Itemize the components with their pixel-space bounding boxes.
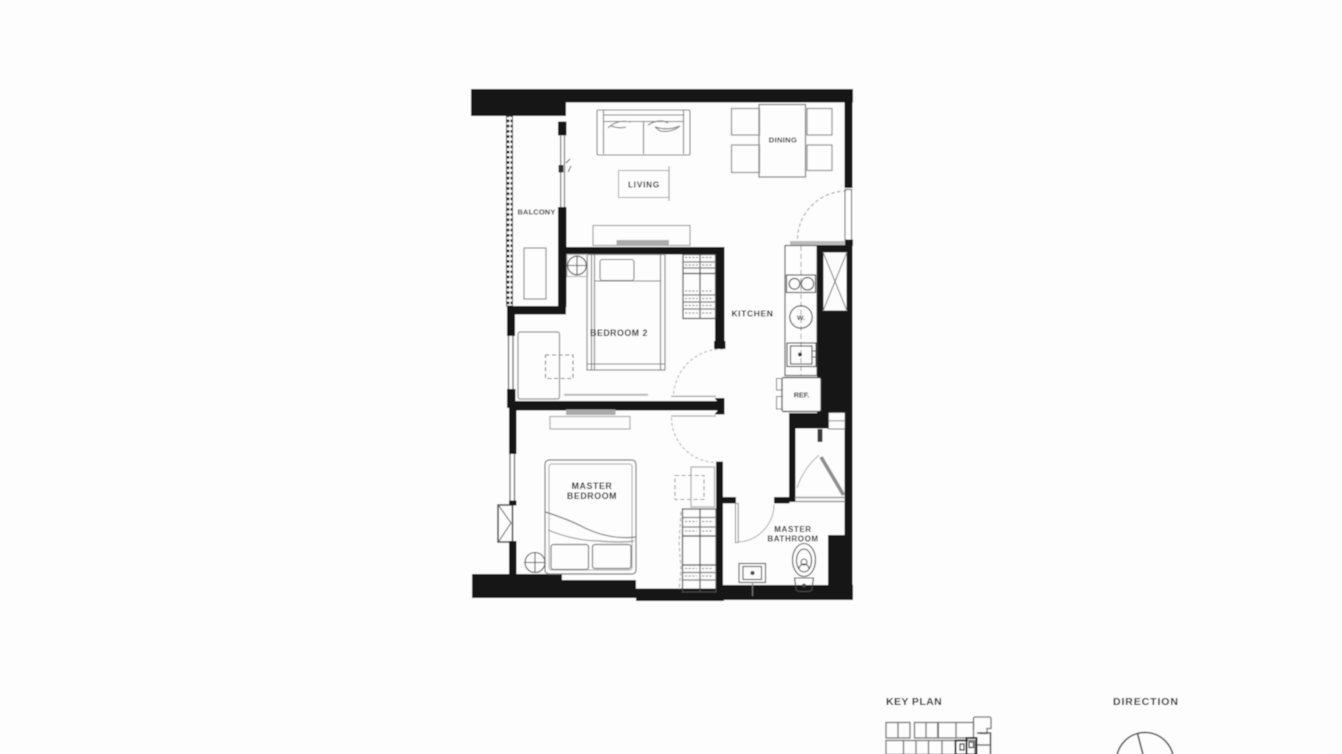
svg-text:LIVING: LIVING xyxy=(628,181,660,190)
svg-text:REF.: REF. xyxy=(794,391,810,400)
svg-text:DINING: DINING xyxy=(769,136,797,145)
svg-text:KITCHEN: KITCHEN xyxy=(731,309,773,319)
svg-text:MASTER: MASTER xyxy=(572,481,613,491)
svg-text:W.: W. xyxy=(797,315,805,322)
svg-text:BEDROOM: BEDROOM xyxy=(567,491,617,501)
svg-text:KEY PLAN: KEY PLAN xyxy=(886,696,942,708)
svg-text:MASTER: MASTER xyxy=(774,525,811,534)
svg-text:BALCONY: BALCONY xyxy=(518,208,556,217)
svg-text:BEDROOM 2: BEDROOM 2 xyxy=(590,328,648,338)
svg-text:DIRECTION: DIRECTION xyxy=(1113,696,1179,708)
svg-text:BATHROOM: BATHROOM xyxy=(767,535,818,544)
